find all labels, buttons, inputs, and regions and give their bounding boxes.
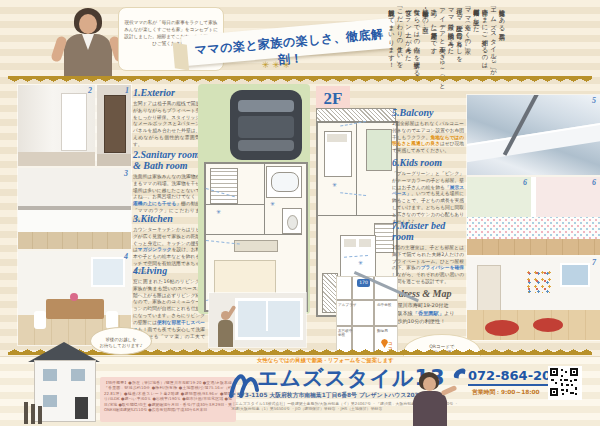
plan-kitchen-counter xyxy=(234,240,278,252)
wall-decals xyxy=(525,269,551,293)
qr-code xyxy=(548,366,582,400)
photo-number: 7 xyxy=(592,258,596,267)
map-label: 北中学校 xyxy=(377,303,395,307)
entrance-door-shape xyxy=(104,95,126,153)
door-shape xyxy=(477,265,501,311)
plan-wall xyxy=(318,215,396,216)
section-heading-balcony: 5.Balcony xyxy=(392,108,466,119)
floor-shape xyxy=(97,154,131,166)
map-pin-icon xyxy=(381,339,388,348)
business-hours: 営業時間：9:00～18:00 xyxy=(472,388,540,397)
section-heading-kitchen: 3.Kitchen xyxy=(133,214,207,225)
car-windshield xyxy=(238,100,294,112)
pillow-shape xyxy=(327,134,347,142)
cabinet-shape xyxy=(18,210,131,233)
photo-kids-rooms: 6 6 xyxy=(467,177,600,255)
plan-balcony-strip xyxy=(316,108,396,122)
red-rug-shape xyxy=(533,318,563,332)
section-heading-kidsroom: 6.Kids room xyxy=(392,158,466,169)
plan-marker-icon: ✳ xyxy=(358,259,363,266)
visit-speech-bubble: 皆様のお越しを お待ちしております♪ xyxy=(90,327,152,355)
phone-icon xyxy=(451,366,469,382)
photo-number: 6 xyxy=(592,178,596,187)
flower-decor xyxy=(70,293,78,301)
map-label: アルプラザ xyxy=(338,303,356,307)
presenter-photo xyxy=(52,6,124,78)
window-shape xyxy=(91,257,125,287)
photo-number: 3 xyxy=(124,169,128,178)
flyer-page: 現役ママの私が「毎日の家事をラクして家族みんなが楽しくすごせる家」をコンセプトに… xyxy=(0,0,600,426)
window-shape xyxy=(43,369,57,381)
map-road xyxy=(351,277,353,353)
plan-wall xyxy=(356,123,357,215)
plan-bed-1 xyxy=(324,131,352,177)
section-heading-living: 4.Living xyxy=(133,266,207,277)
polkadot-wallpaper xyxy=(467,217,600,239)
red-rug-shape xyxy=(485,320,519,336)
car-rear-window xyxy=(238,140,294,151)
address-map-body: 寝屋川市寿町19-20付近 京阪本線「香里園駅」より 徒歩約10分の利便性！ xyxy=(392,302,464,325)
balcony-railing-shape xyxy=(467,121,600,164)
photo-entrance-door: 1 xyxy=(97,85,131,166)
photo-number: 5 xyxy=(592,96,596,105)
house-exterior-photo xyxy=(22,340,106,426)
garland-divider-top xyxy=(8,76,592,82)
footer-tagline: 女性ならではの目線で新築・リフォームをご提案します xyxy=(257,357,394,364)
section-body-kidsroom: 「ブルーグリーン」と「ピンク」がテーマカラーの子ども部屋。壁にはお子さんの絵を飾… xyxy=(392,171,464,226)
photo-number: 2 xyxy=(88,86,92,95)
map-road xyxy=(337,299,397,301)
figure-pointing-arm xyxy=(441,385,458,396)
photo-sanitary-room: 2 xyxy=(18,85,95,166)
pillow-shape xyxy=(344,239,356,247)
photo-master-bedroom: 7 xyxy=(467,257,600,340)
window-mullion xyxy=(266,301,268,331)
wood-floor-shape xyxy=(18,232,131,249)
fence-post xyxy=(38,406,42,424)
fence-post xyxy=(31,404,35,424)
fence-post xyxy=(24,402,28,424)
figure-head xyxy=(423,377,436,391)
section-heading-masterbedroom: 7.Master bed room xyxy=(392,221,452,242)
door-shape xyxy=(75,397,88,419)
plan-bed-2 xyxy=(366,129,392,171)
plan-marker-icon: ✳ xyxy=(332,181,337,188)
photo-number: 6 xyxy=(523,178,527,187)
figure-head xyxy=(79,14,97,34)
house-body-shape xyxy=(34,360,96,422)
photo-number: 4 xyxy=(124,252,128,261)
staff-photo-pointing xyxy=(405,372,457,426)
plan-wall xyxy=(264,164,265,234)
area-map: 170 アルプラザ 北中学校 友呂岐中学校 郵便局 ココ xyxy=(336,276,398,354)
section-body-balcony: 2階全部屋はもれなくバルコニー付きなのでエアコン設置やお布団干しもラクラク。角地… xyxy=(392,121,464,155)
floor-shape xyxy=(18,152,95,166)
ribbon-stars: ✳ ✳ ✳ xyxy=(246,60,306,70)
door-shape xyxy=(61,93,87,151)
plan-marker-icon: ✳ xyxy=(216,208,221,215)
window-shape xyxy=(235,298,303,340)
section-heading-exterior: 1.Exterior xyxy=(133,88,207,99)
dining-table-shape xyxy=(46,299,104,319)
section-heading-sanitary: 2.Sanitary room & Bath room xyxy=(133,150,207,171)
chair-shape xyxy=(34,311,46,329)
plan-bathroom xyxy=(266,166,302,198)
plan-1f-outline: ✳ ✳ xyxy=(204,162,308,312)
pillow-shape xyxy=(359,239,371,247)
plan-stairs xyxy=(210,168,238,204)
photo-number: 1 xyxy=(125,86,129,95)
window-shape xyxy=(43,395,57,407)
plan-wall xyxy=(206,234,302,235)
wood-floor-shape xyxy=(467,239,600,255)
window-shape xyxy=(560,263,590,287)
map-road xyxy=(373,277,375,353)
car-roof xyxy=(238,116,294,138)
figure-body xyxy=(218,320,233,347)
roof-shape xyxy=(28,342,100,362)
visit-speech-text: 皆様のお越しを お待ちしております♪ xyxy=(99,337,142,349)
map-label: 友呂岐中学校 xyxy=(338,329,353,338)
plan-marker-icon: ✳ xyxy=(270,200,275,207)
route-badge: 170 xyxy=(357,279,370,287)
property-overview-box: 【物件概要】●所在（登記地番）/寝屋川市寿町19-20 ●交通/京阪本線「香里園… xyxy=(100,377,236,422)
figure-body xyxy=(413,391,447,426)
section-body-masterbedroom: 2階の主寝室は、子ども部屋とは廊下で隔てられた夫婦2人だけのプライベートルーム。… xyxy=(392,245,464,286)
photo-balcony: 5 xyxy=(467,95,600,175)
section-body-exterior: 玄関ドアは格子風の縦桟で開放感がありながらもプライベート空間をしっかり確保。スタ… xyxy=(133,101,205,149)
floor-plan-1f: ✳ ✳ xyxy=(198,84,310,314)
photo-kitchen: 3 xyxy=(18,168,131,249)
plan-stairs xyxy=(374,223,394,253)
map-label: 郵便局 xyxy=(377,329,395,333)
plan-toilet xyxy=(282,208,302,234)
toilet-shape xyxy=(287,215,298,230)
plan-wall xyxy=(206,204,264,205)
qr-pattern xyxy=(549,367,579,397)
car-shape xyxy=(230,90,302,160)
bathtub-shape xyxy=(271,172,299,192)
photo-window-woman xyxy=(209,293,306,347)
map-road xyxy=(337,325,397,327)
company-address: 〒573-1105 大阪府枚方市南楠葉1丁目6番8号 プレザントハウス203 xyxy=(231,391,419,400)
intro-vertical-text: 枚方樟葉にある工務店 「エムズスタイル13」が 今回皆さまにご紹介するのは、 寝… xyxy=(384,4,506,104)
window-shape xyxy=(71,369,85,381)
